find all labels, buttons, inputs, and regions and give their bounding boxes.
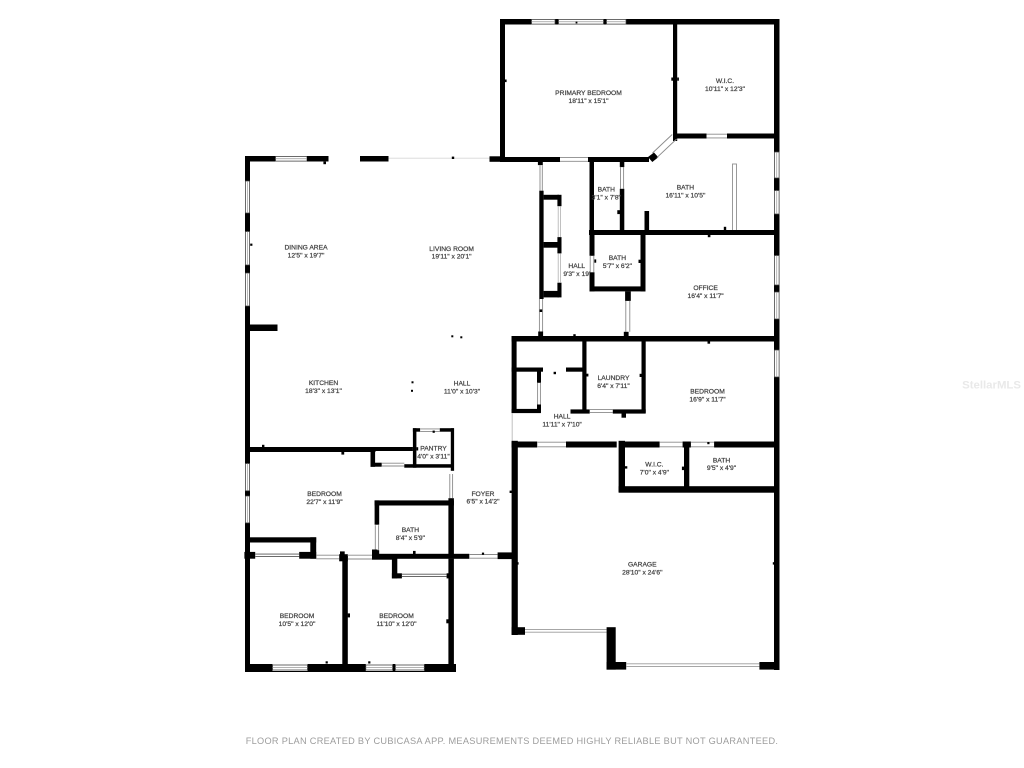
svg-text:22'7" x 11'9": 22'7" x 11'9" bbox=[306, 499, 343, 506]
svg-text:BEDROOM: BEDROOM bbox=[379, 613, 414, 620]
svg-text:12'5" x 19'7": 12'5" x 19'7" bbox=[288, 253, 325, 260]
svg-text:BATH: BATH bbox=[402, 527, 420, 534]
svg-text:FLOOR PLAN CREATED BY CUBICASA: FLOOR PLAN CREATED BY CUBICASA APP. MEAS… bbox=[246, 736, 779, 746]
svg-text:PANTRY: PANTRY bbox=[420, 445, 447, 452]
svg-text:GARAGE: GARAGE bbox=[628, 562, 657, 569]
svg-text:FOYER: FOYER bbox=[471, 491, 494, 498]
svg-text:10'5" x 12'0": 10'5" x 12'0" bbox=[279, 621, 316, 628]
svg-text:W.I.C.: W.I.C. bbox=[716, 78, 734, 85]
svg-text:19'11" x 20'1": 19'11" x 20'1" bbox=[432, 254, 473, 261]
svg-text:11'0" x 10'3": 11'0" x 10'3" bbox=[444, 389, 481, 396]
svg-text:StellarMLS: StellarMLS bbox=[962, 380, 1021, 392]
svg-text:LAUNDRY: LAUNDRY bbox=[598, 375, 630, 382]
svg-text:3'1" x 7'8": 3'1" x 7'8" bbox=[592, 194, 622, 201]
svg-text:LIVING ROOM: LIVING ROOM bbox=[429, 246, 474, 253]
svg-text:18'11" x 15'1": 18'11" x 15'1" bbox=[569, 98, 610, 105]
svg-text:DINING AREA: DINING AREA bbox=[284, 245, 328, 252]
svg-text:W.I.C.: W.I.C. bbox=[645, 462, 663, 469]
svg-text:PRIMARY BEDROOM: PRIMARY BEDROOM bbox=[555, 90, 622, 97]
svg-text:HALL: HALL bbox=[554, 414, 571, 421]
svg-text:BEDROOM: BEDROOM bbox=[307, 491, 342, 498]
svg-text:11'10" x 12'0": 11'10" x 12'0" bbox=[377, 621, 418, 628]
svg-text:HALL: HALL bbox=[568, 263, 585, 270]
svg-text:6'5" x 14'2": 6'5" x 14'2" bbox=[467, 499, 501, 506]
svg-text:BEDROOM: BEDROOM bbox=[280, 613, 315, 620]
svg-text:6'4" x 7'11": 6'4" x 7'11" bbox=[597, 383, 630, 390]
svg-text:BATH: BATH bbox=[677, 185, 695, 192]
svg-text:7'0" x 4'9": 7'0" x 4'9" bbox=[640, 470, 670, 477]
svg-text:BATH: BATH bbox=[713, 457, 731, 464]
svg-text:16'4" x 11'7": 16'4" x 11'7" bbox=[688, 293, 725, 300]
svg-text:9'3" x 19': 9'3" x 19' bbox=[563, 271, 590, 278]
svg-text:HALL: HALL bbox=[454, 381, 471, 388]
svg-text:4'0" x 3'11": 4'0" x 3'11" bbox=[417, 453, 450, 460]
svg-text:11'11" x 7'10": 11'11" x 7'10" bbox=[542, 422, 582, 429]
svg-text:8'4" x 5'9": 8'4" x 5'9" bbox=[396, 535, 426, 542]
svg-text:18'3" x 13'1": 18'3" x 13'1" bbox=[305, 388, 342, 395]
svg-text:BATH: BATH bbox=[609, 255, 627, 262]
svg-text:5'7" x 6'2": 5'7" x 6'2" bbox=[603, 263, 633, 270]
svg-text:16'9" x 11'7": 16'9" x 11'7" bbox=[689, 397, 726, 404]
svg-text:BATH: BATH bbox=[598, 187, 616, 194]
svg-text:10'11" x 12'3": 10'11" x 12'3" bbox=[705, 86, 746, 93]
svg-text:BEDROOM: BEDROOM bbox=[690, 389, 725, 396]
svg-text:9'5" x 4'9": 9'5" x 4'9" bbox=[707, 465, 737, 472]
svg-text:16'11" x 10'5": 16'11" x 10'5" bbox=[665, 193, 706, 200]
svg-text:KITCHEN: KITCHEN bbox=[309, 380, 339, 387]
svg-text:28'10" x 24'6": 28'10" x 24'6" bbox=[622, 570, 663, 577]
svg-text:OFFICE: OFFICE bbox=[693, 285, 718, 292]
